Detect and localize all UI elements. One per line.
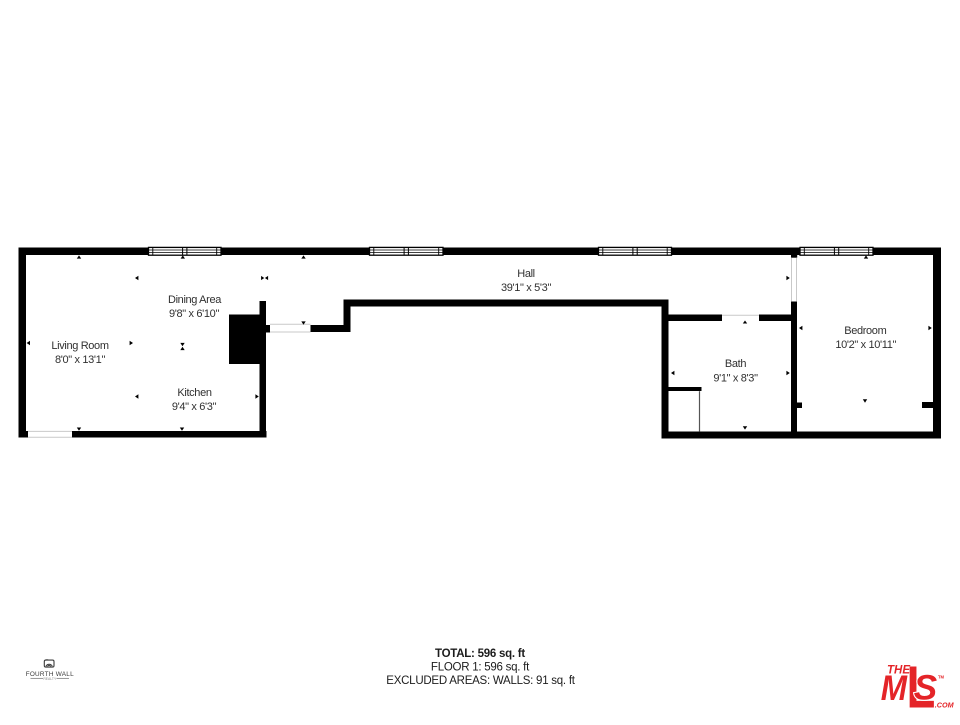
svg-text:39'1" x 5'3": 39'1" x 5'3" [501,282,551,294]
svg-text:Bedroom: Bedroom [844,325,886,337]
svg-text:8'0" x 13'1": 8'0" x 13'1" [55,354,105,366]
svg-text:TM: TM [938,675,945,680]
svg-text:10'2" x 10'11": 10'2" x 10'11" [835,339,896,351]
svg-text:EXCLUDED AREAS: WALLS: 91 sq.: EXCLUDED AREAS: WALLS: 91 sq. ft [386,675,575,687]
svg-text:TOTAL: 596 sq. ft: TOTAL: 596 sq. ft [435,648,525,660]
svg-text:9'8" x 6'10": 9'8" x 6'10" [169,308,219,320]
svg-text:Living Room: Living Room [51,340,108,352]
svg-text:FLOOR 1: 596 sq. ft: FLOOR 1: 596 sq. ft [431,662,530,674]
svg-text:Kitchen: Kitchen [177,387,211,399]
svg-text:THE: THE [887,664,910,676]
svg-text:Bath: Bath [725,358,746,370]
svg-text:S: S [914,668,937,707]
svg-text:.COM: .COM [935,701,955,710]
svg-text:9'4" x 6'3": 9'4" x 6'3" [172,401,217,413]
svg-text:Hall: Hall [517,268,535,280]
svg-text:9'1" x 8'3": 9'1" x 8'3" [713,373,758,385]
svg-text:Dining Area: Dining Area [168,294,222,306]
svg-text:REALTY: REALTY [43,677,57,681]
